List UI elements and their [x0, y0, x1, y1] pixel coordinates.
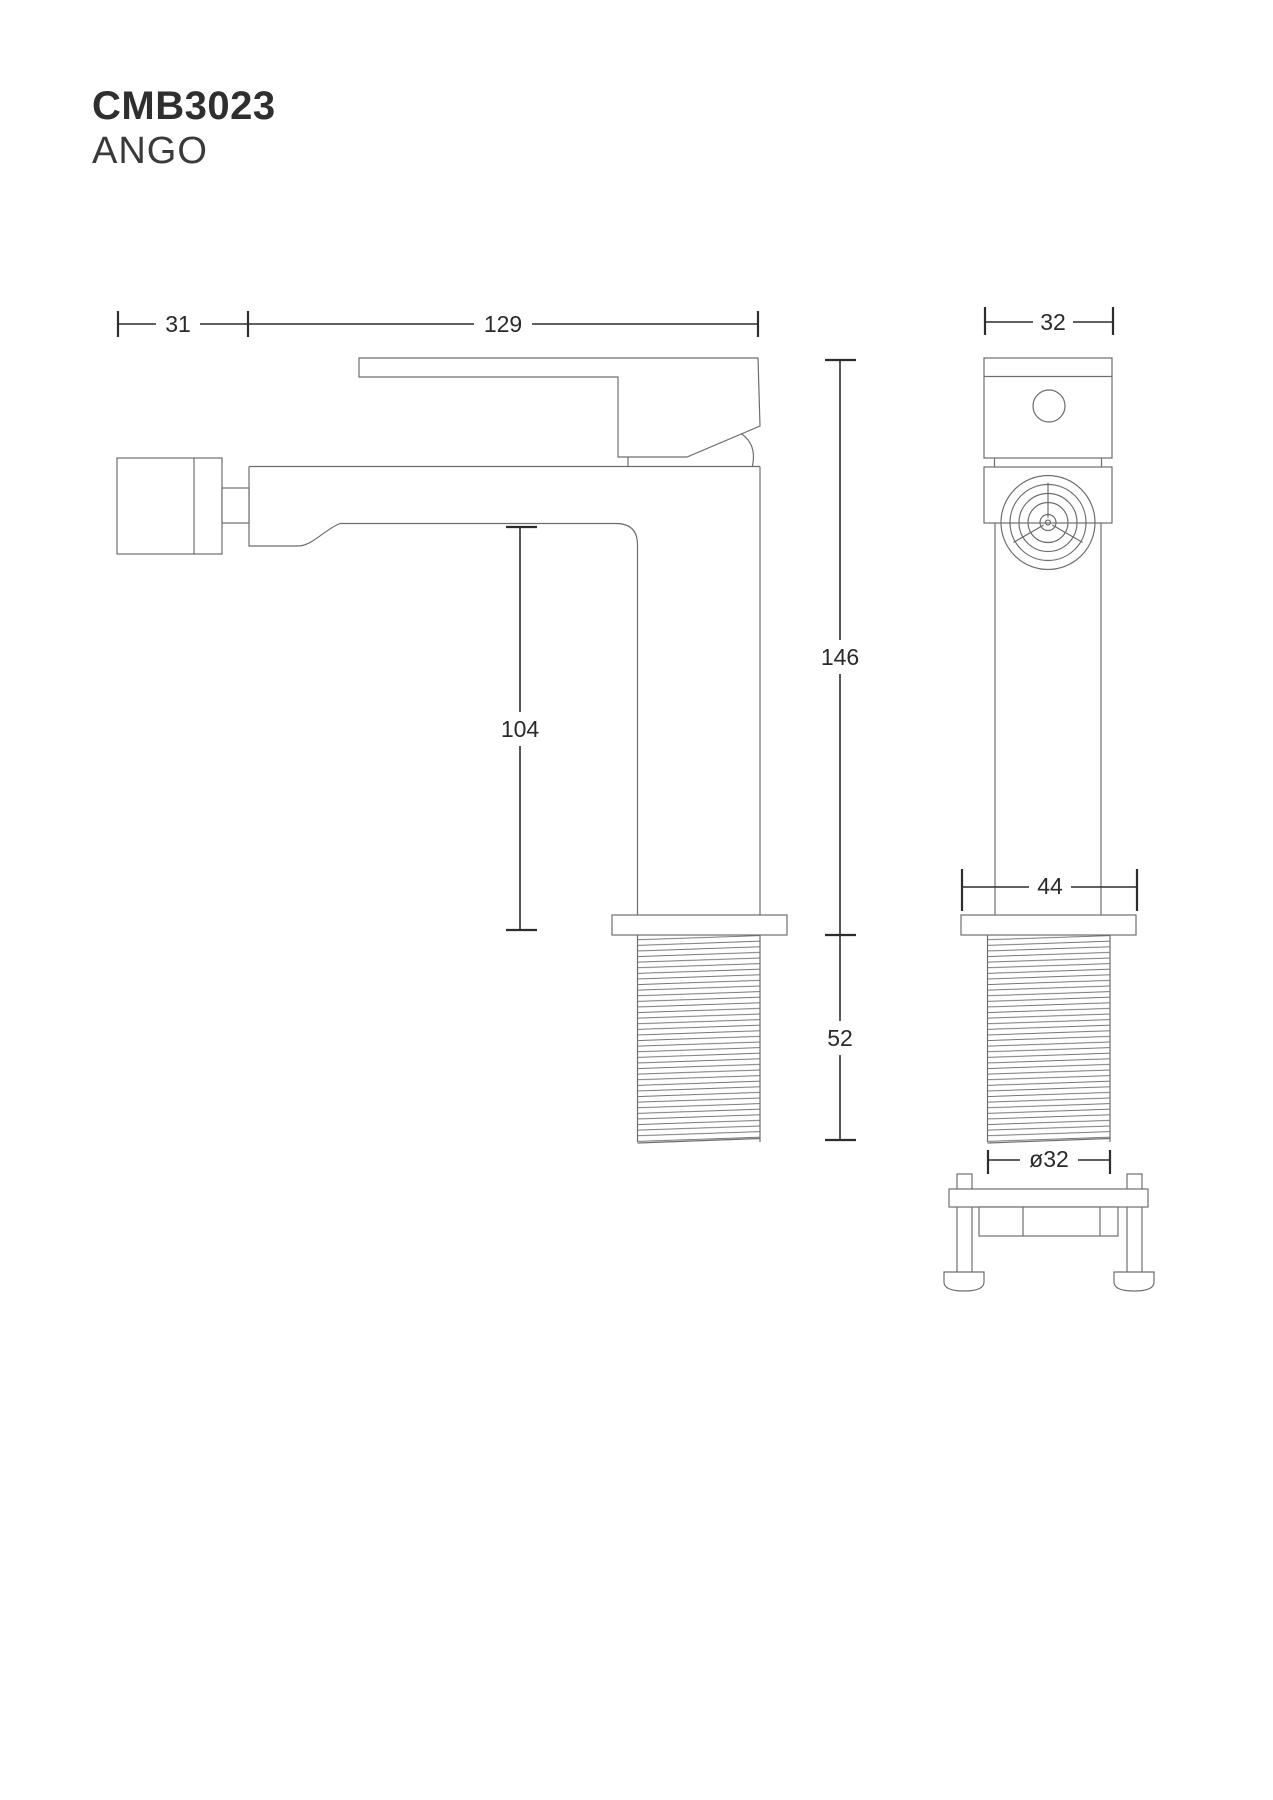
front-dim-thread-diameter: ø32: [988, 1146, 1110, 1174]
clamp-gasket: [979, 1207, 1118, 1236]
front-dim-flange-width: 44: [962, 869, 1137, 911]
dim-label-thread-diameter: ø32: [1029, 1146, 1069, 1172]
mounting-screw-head-left: [944, 1272, 984, 1291]
front-view: 32 44 ø32: [944, 307, 1154, 1291]
side-dim-heights: 146 52: [812, 360, 868, 1140]
front-lever-head: [984, 358, 1112, 467]
dim-label-total-height: 146: [821, 644, 859, 670]
mounting-screw-head-right: [1114, 1272, 1154, 1291]
dim-label-spout-reach: 129: [484, 311, 522, 337]
dim-label-spout-height: 104: [501, 716, 540, 742]
front-dim-body-width: 32: [985, 307, 1113, 335]
clamp-plate: [949, 1189, 1148, 1207]
dim-label-flange-width: 44: [1037, 873, 1063, 899]
dim-label-body-width: 32: [1040, 309, 1066, 335]
side-aerator-knob: [117, 458, 249, 554]
technical-drawing: 31 129 104 146 52: [0, 0, 1273, 1800]
front-body-column: [984, 467, 1112, 915]
front-mounting-flange: [961, 915, 1136, 935]
side-threaded-shank: [638, 935, 761, 1143]
side-lever-handle: [359, 358, 760, 467]
side-view: 31 129 104 146 52: [117, 310, 868, 1143]
side-mounting-flange: [612, 915, 787, 935]
dim-label-thread-length: 52: [827, 1025, 853, 1051]
front-threaded-shank: [988, 935, 1111, 1143]
side-spout-body: [249, 467, 760, 916]
front-mounting-hardware: [944, 1174, 1154, 1291]
spec-sheet-page: CMB3023 ANGO: [0, 0, 1273, 1800]
side-dim-horizontal: 31 129: [118, 310, 758, 337]
side-dim-spout-height: 104: [493, 527, 547, 930]
dim-label-handle-offset: 31: [165, 311, 191, 337]
